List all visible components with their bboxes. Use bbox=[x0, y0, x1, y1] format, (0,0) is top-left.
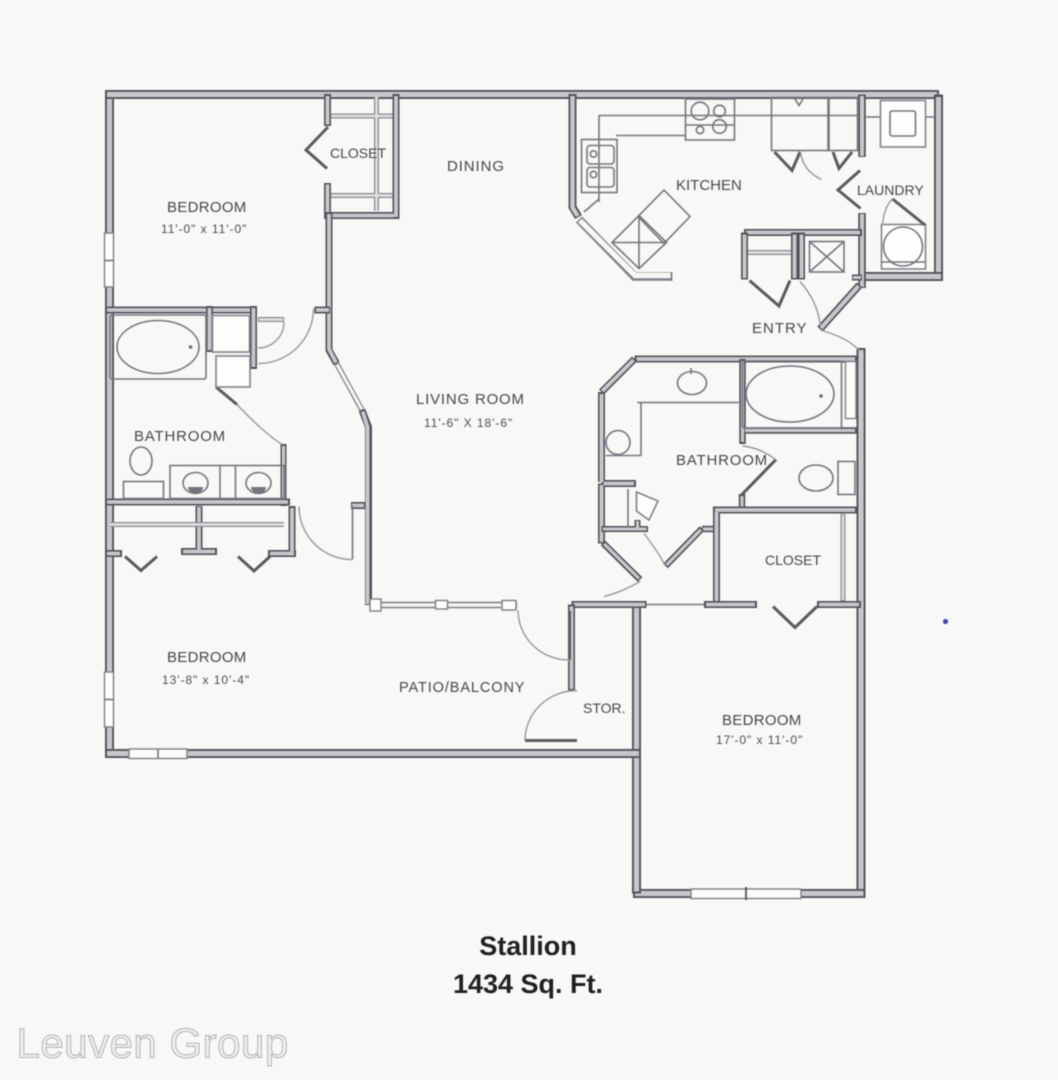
svg-text:ENTRY: ENTRY bbox=[752, 320, 808, 337]
svg-text:BATHROOM: BATHROOM bbox=[134, 428, 226, 445]
svg-text:13'-8" x 10'-4": 13'-8" x 10'-4" bbox=[162, 673, 250, 687]
svg-text:LIVING ROOM: LIVING ROOM bbox=[416, 391, 525, 408]
svg-text:CLOSET: CLOSET bbox=[330, 145, 386, 161]
svg-text:BATHROOM: BATHROOM bbox=[676, 452, 768, 469]
svg-text:Leuven Group: Leuven Group bbox=[17, 1020, 289, 1067]
svg-text:1434 Sq. Ft.: 1434 Sq. Ft. bbox=[453, 969, 603, 999]
svg-text:DINING: DINING bbox=[447, 158, 505, 175]
svg-text:BEDROOM: BEDROOM bbox=[722, 712, 802, 729]
svg-text:PATIO/BALCONY: PATIO/BALCONY bbox=[399, 680, 525, 696]
svg-text:CLOSET: CLOSET bbox=[765, 552, 821, 568]
svg-text:LAUNDRY: LAUNDRY bbox=[857, 182, 924, 198]
svg-text:11'-6" X 18'-6": 11'-6" X 18'-6" bbox=[424, 416, 513, 430]
svg-text:STOR.: STOR. bbox=[583, 700, 626, 716]
svg-text:11'-0" x 11'-0": 11'-0" x 11'-0" bbox=[161, 222, 247, 236]
svg-text:Stallion: Stallion bbox=[479, 931, 577, 961]
svg-text:17'-0" x 11'-0": 17'-0" x 11'-0" bbox=[716, 733, 803, 747]
svg-text:KITCHEN: KITCHEN bbox=[676, 177, 742, 194]
svg-text:BEDROOM: BEDROOM bbox=[167, 649, 247, 666]
svg-text:BEDROOM: BEDROOM bbox=[167, 199, 247, 216]
